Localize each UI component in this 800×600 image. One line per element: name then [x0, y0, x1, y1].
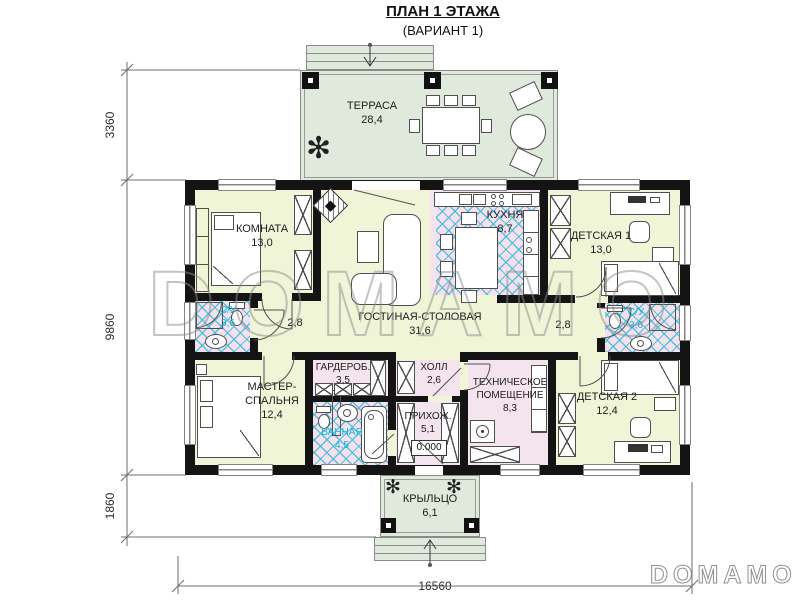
wall — [195, 352, 262, 360]
toilet-bowl — [609, 313, 621, 329]
dim-house-depth: 9860 — [103, 297, 117, 357]
desk-device — [651, 445, 663, 453]
terrace-entry-steps — [306, 45, 434, 70]
wall — [250, 338, 258, 352]
wall — [597, 303, 605, 308]
dim-terrace-depth: 3360 — [103, 95, 117, 155]
sofa-section — [351, 273, 397, 305]
shelf — [196, 208, 209, 292]
terrace-chair — [481, 119, 492, 133]
wall — [460, 390, 468, 465]
bathroom-label: ВАННАЯ 4,5 — [321, 428, 362, 451]
wardrobe-cabinet — [294, 250, 312, 290]
basin-drain — [212, 338, 219, 345]
terrace-chair — [462, 145, 476, 156]
wall — [460, 352, 578, 360]
wall — [452, 396, 460, 402]
kids2-label: ДЕТСКАЯ 2 12,4 — [577, 392, 637, 417]
wall — [597, 338, 605, 352]
dining-table — [455, 227, 498, 289]
chair — [461, 212, 477, 225]
wardrobe-cabinet — [294, 195, 312, 235]
basin-drain — [343, 409, 351, 417]
window — [443, 179, 507, 191]
boiler-dot — [481, 430, 484, 433]
terrace-chair — [444, 145, 458, 156]
wardrobe-cabinet — [550, 195, 571, 226]
kitchen-counter-right — [523, 210, 539, 295]
porch-post — [464, 518, 479, 533]
wall — [250, 301, 258, 308]
sink-bowl — [526, 247, 532, 253]
toilet-tank — [316, 406, 331, 413]
wardrobe-cabinet — [550, 228, 571, 259]
wardrobe-label: ГАРДЕРОБ. 3,5 — [316, 363, 370, 386]
window — [321, 464, 357, 476]
entry-label: ПРИХОЖ. 5,1 — [405, 412, 452, 435]
chair — [440, 261, 453, 277]
kitchen-label: КУХНЯ 8,7 — [487, 210, 524, 235]
wall — [305, 360, 313, 465]
hall-width-right: 2,8 — [555, 320, 570, 331]
terrace-table — [422, 107, 480, 144]
level-mark: 0.000 — [411, 440, 447, 456]
window — [679, 305, 691, 341]
basin-drain — [637, 340, 644, 347]
terrace-door-opening — [352, 181, 420, 190]
pillow — [214, 215, 234, 230]
computer-icon — [628, 196, 646, 203]
wall — [608, 295, 680, 303]
toilet-tank — [607, 305, 623, 312]
desk-device — [650, 197, 660, 203]
blanket-fold — [240, 430, 259, 456]
wall — [388, 456, 396, 465]
wall — [388, 352, 396, 430]
dim-total-width: 16560 — [395, 579, 475, 593]
wall — [292, 293, 321, 301]
chair — [461, 290, 477, 303]
terrace-post — [424, 72, 441, 89]
wall — [540, 190, 548, 295]
wall — [497, 295, 575, 303]
wardrobe-cabinet — [397, 361, 415, 394]
wall — [460, 360, 468, 362]
living-label: ГОСТИНАЯ-СТОЛОВАЯ 31,6 — [358, 312, 481, 337]
window — [578, 179, 640, 191]
terrace-round-table — [510, 114, 546, 150]
fireplace-core — [325, 200, 336, 211]
wall — [608, 352, 680, 360]
nightstand — [196, 364, 207, 375]
terrace-chair — [444, 95, 458, 106]
window — [184, 385, 196, 445]
window — [679, 385, 691, 445]
sink-bowl — [526, 237, 532, 243]
wardrobe-cabinet — [558, 393, 576, 424]
window — [218, 464, 273, 476]
terrace-chair — [426, 145, 440, 156]
wc-right-label: С/У 3,6 — [628, 308, 644, 331]
terrace-chair — [409, 119, 420, 133]
stove-burner — [499, 194, 504, 199]
coffee-table — [357, 231, 379, 263]
plant-icon: ✻ — [385, 478, 401, 497]
computer-icon — [628, 444, 648, 452]
wardrobe-cabinet — [370, 360, 386, 396]
sink-bowl — [473, 194, 486, 205]
terrace-chair — [462, 95, 476, 106]
nightstand — [654, 397, 676, 411]
pillow — [200, 380, 213, 402]
porch-steps — [374, 537, 486, 561]
window — [184, 205, 196, 265]
window — [184, 302, 196, 340]
sink-bowl — [459, 194, 472, 205]
kitchen-appliance — [512, 194, 532, 205]
desk-chair — [629, 221, 650, 243]
floor-plan: ПЛАН 1 ЭТАЖА (ВАРИАНТ 1) ✻ ТЕРРАСА 28,4 — [0, 0, 800, 600]
watermark-logo: DOMAMO — [650, 561, 795, 590]
porch-post — [381, 518, 396, 533]
terrace-post — [302, 72, 319, 89]
wardrobe-cabinet — [558, 426, 576, 457]
stove-burner — [499, 201, 504, 206]
plant-icon: ✻ — [306, 134, 331, 164]
chair — [440, 234, 453, 250]
window — [500, 464, 540, 476]
bathtub-drain — [368, 414, 374, 420]
wall — [548, 352, 556, 465]
porch-label: КРЫЛЬЦО 6,1 — [403, 494, 457, 519]
pillow — [604, 363, 618, 391]
page-title: ПЛАН 1 ЭТАЖА — [328, 3, 558, 20]
wc-left-label: С/У 3,6 — [220, 306, 236, 329]
pillow — [604, 264, 618, 292]
terrace-chair — [426, 95, 440, 106]
bathtub-inner — [364, 410, 384, 459]
hall-width-left: 2,8 — [287, 318, 302, 329]
window — [679, 205, 691, 265]
window — [218, 179, 276, 191]
kids1-label: ДЕТСКАЯ 1 13,0 — [571, 231, 631, 256]
wall — [396, 396, 428, 402]
wall — [195, 293, 262, 301]
stove-burner — [491, 194, 496, 199]
blanket-fold — [659, 263, 676, 294]
porch-door-opening — [415, 466, 443, 475]
storage-cabinet — [470, 446, 520, 463]
wall — [292, 352, 391, 360]
blanket-fold — [659, 362, 676, 393]
master-label: МАСТЕР- СПАЛЬНЯ 12,4 — [245, 382, 299, 421]
terrace-post — [541, 72, 558, 89]
window — [583, 464, 640, 476]
blanket-fold — [213, 266, 233, 284]
terrace-label: ТЕРРАСА 28,4 — [347, 101, 397, 126]
bedroom-label: КОМНАТА 13,0 — [236, 224, 288, 249]
page-subtitle: (ВАРИАНТ 1) — [328, 23, 558, 38]
dim-porch-depth: 1860 — [103, 476, 117, 536]
hall-label: ХОЛЛ 2,6 — [420, 363, 447, 386]
stove-burner — [491, 201, 496, 206]
desk-chair — [630, 417, 651, 438]
wall — [313, 396, 388, 402]
tech-label: ТЕХНИЧЕСКОЕ ПОМЕЩЕНИЕ 8,3 — [473, 378, 548, 414]
pillow — [200, 406, 213, 428]
